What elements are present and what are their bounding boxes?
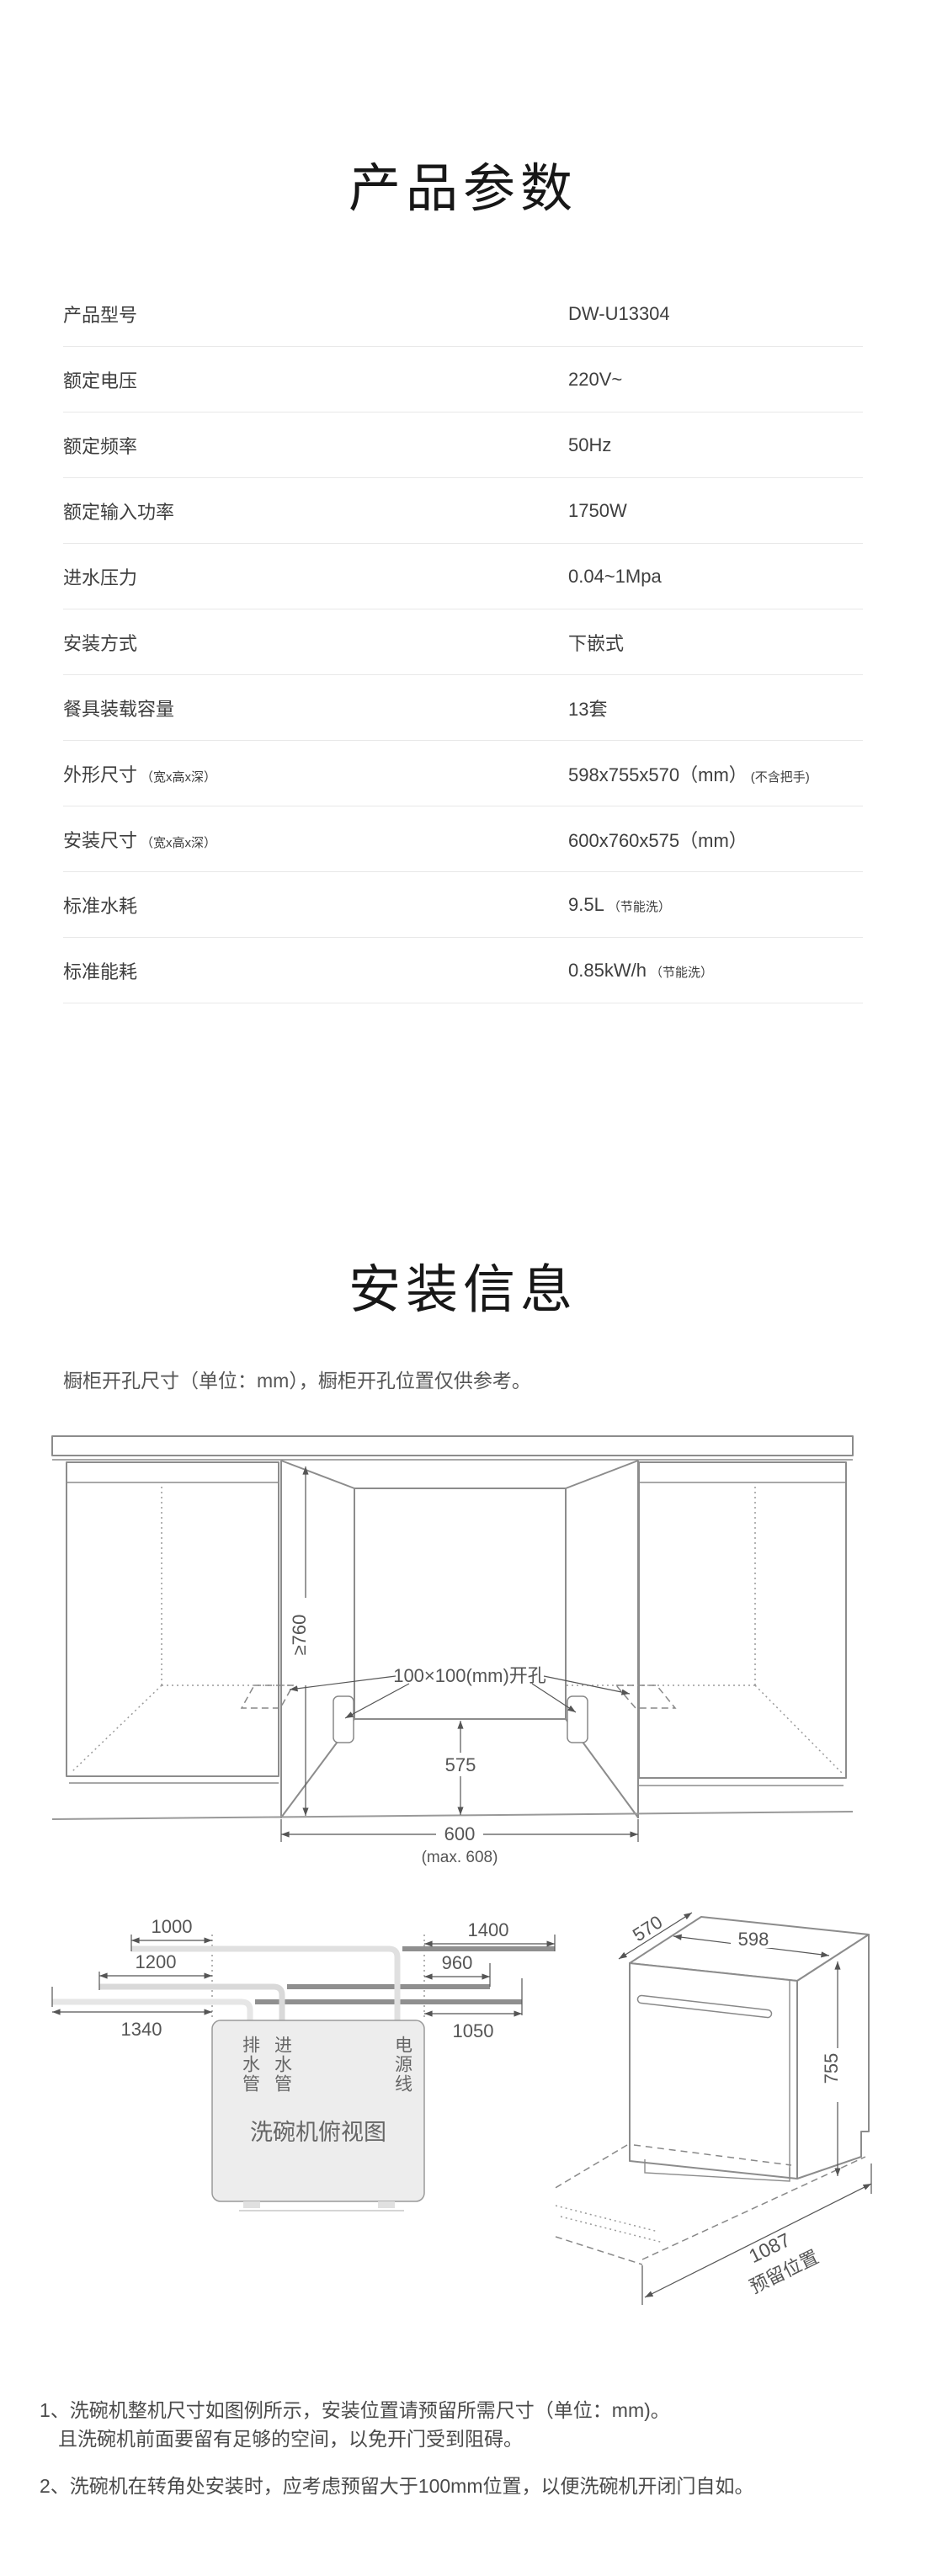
row-label: 安装尺寸 bbox=[63, 830, 137, 851]
perspective-diagram: 570 598 755 1087 预留位置 bbox=[554, 1911, 871, 2305]
row-label: 额定输入功率 bbox=[63, 502, 174, 523]
table-row: 进水压力 0.04~1Mpa bbox=[63, 544, 863, 609]
table-row: 餐具装载容量 13套 bbox=[63, 675, 863, 741]
row-label-suffix: （宽x高x深） bbox=[141, 836, 216, 850]
dim-755-label: 755 bbox=[821, 2053, 842, 2084]
table-row: 额定输入功率 1750W bbox=[63, 478, 863, 544]
dim-1000-label: 1000 bbox=[152, 1916, 193, 1937]
row-label-suffix: （宽x高x深） bbox=[141, 770, 216, 785]
row-label: 额定电压 bbox=[63, 370, 137, 391]
row-label: 标准水耗 bbox=[63, 896, 137, 917]
dim-600-max-label: (max. 608) bbox=[422, 1849, 498, 1866]
opening-label: 100×100(mm)开孔 bbox=[393, 1665, 546, 1686]
row-label: 安装方式 bbox=[63, 633, 137, 654]
row-value: DW-U13304 bbox=[568, 303, 670, 324]
dim-1340-label: 1340 bbox=[121, 2019, 162, 2040]
cabinet-cutout-diagram: 100×100(mm)开孔 ≥760 575 600 (max. 608) bbox=[0, 1431, 926, 1903]
row-value-suffix: （节能洗） bbox=[650, 966, 713, 980]
foot-left bbox=[243, 2201, 260, 2208]
dim-1050-label: 1050 bbox=[453, 2020, 494, 2041]
table-row: 安装方式 下嵌式 bbox=[63, 609, 863, 675]
side-opening-left bbox=[333, 1696, 354, 1743]
row-value: 600x760x575（mm） bbox=[568, 830, 748, 851]
row-value-suffix: （节能洗） bbox=[608, 900, 671, 914]
section-title-product-params: 产品参数 bbox=[0, 158, 926, 221]
table-row: 产品型号 DW-U13304 bbox=[63, 281, 863, 347]
floor-line bbox=[52, 1812, 853, 1819]
dim-1400-label: 1400 bbox=[468, 1919, 509, 1940]
note-line-1: 1、洗碗机整机尺寸如图例所示，安装位置请预留所需尺寸（单位：mm)。 bbox=[40, 2396, 890, 2424]
table-row: 标准能耗 0.85kW/h（节能洗） bbox=[63, 938, 863, 1003]
drain-label: 排水管 bbox=[241, 2036, 261, 2094]
inlet-label: 进水管 bbox=[273, 2036, 293, 2094]
dishwasher-front-face bbox=[630, 1963, 797, 2179]
table-row: 标准水耗 9.5L（节能洗） bbox=[63, 872, 863, 938]
countertop bbox=[52, 1436, 853, 1456]
row-value: 598x755x570（mm） bbox=[568, 764, 748, 785]
power-label: 电源线 bbox=[393, 2036, 413, 2094]
foot-right bbox=[378, 2201, 395, 2208]
dim-575-label: 575 bbox=[445, 1754, 476, 1775]
table-row: 额定电压 220V~ bbox=[63, 347, 863, 412]
top-view-diagram: 1000 1200 1340 1400 960 1050 排水管 进水管 电源线… bbox=[52, 1916, 555, 2211]
dim-598-label: 598 bbox=[738, 1929, 769, 1950]
top-view-box-label: 洗碗机俯视图 bbox=[250, 2120, 386, 2145]
row-value: 0.04~1Mpa bbox=[568, 566, 662, 587]
install-notes: 1、洗碗机整机尺寸如图例所示，安装位置请预留所需尺寸（单位：mm)。 且洗碗机前… bbox=[40, 2396, 890, 2500]
cabinet-cutout-caption: 橱柜开孔尺寸（单位：mm），橱柜开孔位置仅供参考。 bbox=[63, 1365, 531, 1393]
row-value: 220V~ bbox=[568, 369, 622, 390]
right-cabinet bbox=[639, 1462, 846, 1778]
dim-height-label: ≥760 bbox=[289, 1615, 310, 1656]
table-row: 额定频率 50Hz bbox=[63, 412, 863, 478]
row-label: 餐具装载容量 bbox=[63, 699, 174, 720]
note-line-2: 2、洗碗机在转角处安装时，应考虑预留大于100mm位置，以便洗碗机开闭门自如。 bbox=[40, 2472, 890, 2500]
drain-hose-left bbox=[52, 2002, 250, 2020]
row-label: 标准能耗 bbox=[63, 961, 137, 982]
row-value-suffix: (不含把手) bbox=[751, 770, 810, 785]
table-row: 安装尺寸（宽x高x深） 600x760x575（mm） bbox=[63, 806, 863, 872]
side-opening-right bbox=[567, 1696, 588, 1743]
dim-600-label: 600 bbox=[444, 1823, 476, 1844]
section-title-install-info: 安装信息 bbox=[0, 1259, 926, 1322]
row-value: 13套 bbox=[568, 699, 607, 720]
dim-570-label: 570 bbox=[629, 1911, 666, 1945]
dim-1200-label: 1200 bbox=[136, 1951, 177, 1972]
row-label: 进水压力 bbox=[63, 567, 137, 588]
row-label: 外形尺寸 bbox=[63, 764, 137, 785]
spec-table: 产品型号 DW-U13304 额定电压 220V~ 额定频率 50Hz 额定输入… bbox=[63, 281, 863, 1003]
installation-diagram: 1000 1200 1340 1400 960 1050 排水管 进水管 电源线… bbox=[0, 1911, 926, 2315]
left-cabinet bbox=[67, 1462, 279, 1776]
row-label: 额定频率 bbox=[63, 436, 137, 457]
note-line-1-cont: 且洗碗机前面要留有足够的空间，以免开门受到阻碍。 bbox=[58, 2424, 890, 2453]
table-row: 外形尺寸（宽x高x深） 598x755x570（mm）(不含把手) bbox=[63, 741, 863, 806]
row-value: 9.5L bbox=[568, 894, 604, 915]
dim-960-label: 960 bbox=[442, 1952, 473, 1973]
row-value: 下嵌式 bbox=[568, 633, 624, 654]
row-label: 产品型号 bbox=[63, 305, 137, 326]
row-value: 0.85kW/h bbox=[568, 960, 647, 981]
row-value: 1750W bbox=[568, 500, 627, 521]
row-value: 50Hz bbox=[568, 434, 611, 455]
product-spec-page: 产品参数 产品型号 DW-U13304 额定电压 220V~ 额定频率 50Hz… bbox=[0, 0, 926, 2576]
